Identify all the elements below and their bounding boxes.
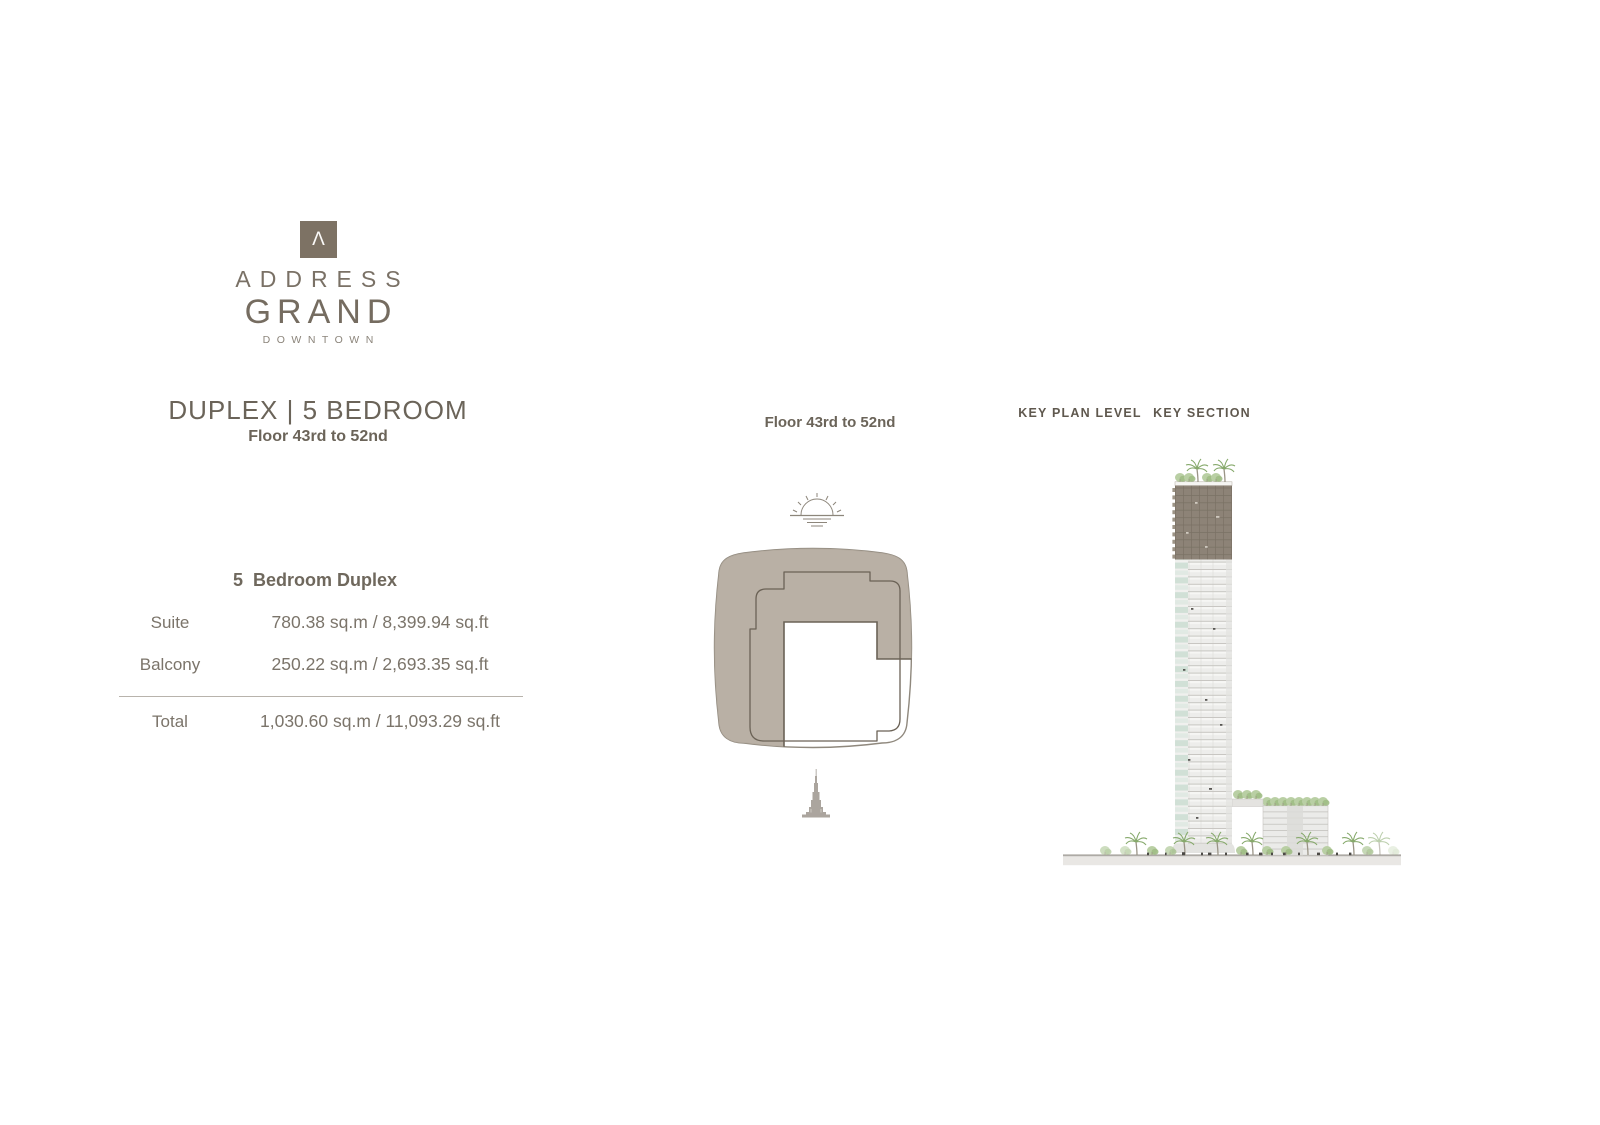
brand-logo-mark: Λ: [300, 221, 337, 258]
tower-roof-garden: [1175, 459, 1235, 482]
ground-band: [1063, 856, 1401, 865]
unit-floor-range: Floor 43rd to 52nd: [118, 428, 518, 446]
table-row-suite: Suite 780.38 sq.m / 8,399.94 sq.ft: [105, 612, 525, 633]
street-trees: [1100, 832, 1400, 855]
podium-building: [1262, 797, 1330, 856]
highlighted-floors-43-52: [1175, 486, 1232, 560]
row-label: Total: [105, 712, 235, 732]
brand-name-address: ADDRESS: [148, 266, 488, 293]
row-value: 1,030.60 sq.m / 11,093.29 sq.ft: [235, 711, 525, 732]
table-row-total: Total 1,030.60 sq.m / 11,093.29 sq.ft: [105, 711, 525, 732]
key-section-label: KEY SECTION: [1102, 406, 1302, 420]
row-label: Suite: [105, 613, 235, 633]
podium-roof-garden: [1262, 797, 1330, 806]
brand-name-grand: GRAND: [148, 293, 488, 332]
burj-khalifa-icon: [795, 768, 837, 820]
tower-base: [1172, 844, 1235, 854]
sunrise-icon: [787, 490, 847, 532]
tower: [1172, 459, 1235, 853]
row-value: 250.22 sq.m / 2,693.35 sq.ft: [235, 654, 525, 675]
caret-icon: Λ: [312, 229, 325, 250]
key-section-tower-drawing: [1055, 458, 1405, 868]
brand-name-downtown: DOWNTOWN: [148, 334, 488, 346]
unit-title: DUPLEX | 5 BEDROOM: [118, 395, 518, 426]
tower-roof-cap: [1175, 482, 1232, 486]
row-label: Balcony: [105, 655, 235, 675]
sky-bridge: [1232, 790, 1263, 807]
tower-balcony-strip: [1175, 560, 1188, 854]
table-divider: [119, 696, 523, 697]
table-row-balcony: Balcony 250.22 sq.m / 2,693.35 sq.ft: [105, 654, 525, 675]
area-table-title: 5 Bedroom Duplex: [105, 570, 525, 591]
area-table: 5 Bedroom Duplex Suite 780.38 sq.m / 8,3…: [105, 570, 525, 753]
key-plan-floor-label: Floor 43rd to 52nd: [705, 414, 955, 431]
row-value: 780.38 sq.m / 8,399.94 sq.ft: [235, 612, 525, 633]
key-plan-diagram: [710, 545, 916, 751]
